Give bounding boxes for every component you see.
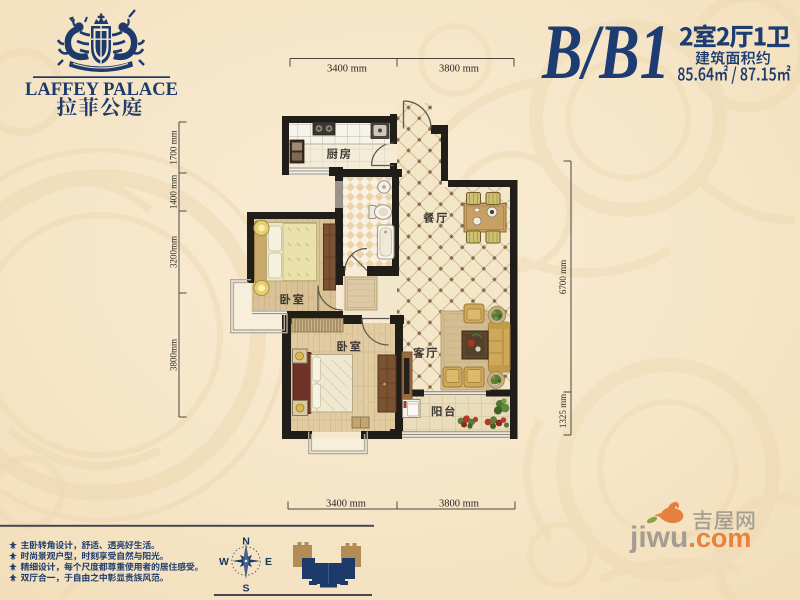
svg-text:1325 mm: 1325 mm: [558, 394, 568, 428]
svg-text:6700 mm: 6700 mm: [558, 260, 568, 294]
svg-text:1700 mm: 1700 mm: [169, 130, 179, 164]
svg-text:N: N: [242, 536, 250, 548]
svg-text:S: S: [242, 583, 249, 595]
svg-text:3400 mm: 3400 mm: [327, 64, 367, 75]
svg-text:3800mm: 3800mm: [169, 339, 179, 371]
svg-text:LAFFEY PALACE: LAFFEY PALACE: [25, 79, 178, 100]
svg-text:3400 mm: 3400 mm: [326, 499, 366, 510]
svg-text:3200mm: 3200mm: [169, 236, 179, 268]
svg-text:3800 mm: 3800 mm: [439, 499, 479, 510]
svg-text:B/B1: B/B1: [541, 8, 670, 95]
svg-text:W: W: [219, 556, 229, 568]
svg-text:jiwu.com: jiwu.com: [629, 521, 751, 554]
svg-text:3800 mm: 3800 mm: [439, 64, 479, 75]
svg-text:E: E: [265, 556, 272, 568]
svg-text:1400 mm: 1400 mm: [169, 175, 179, 209]
